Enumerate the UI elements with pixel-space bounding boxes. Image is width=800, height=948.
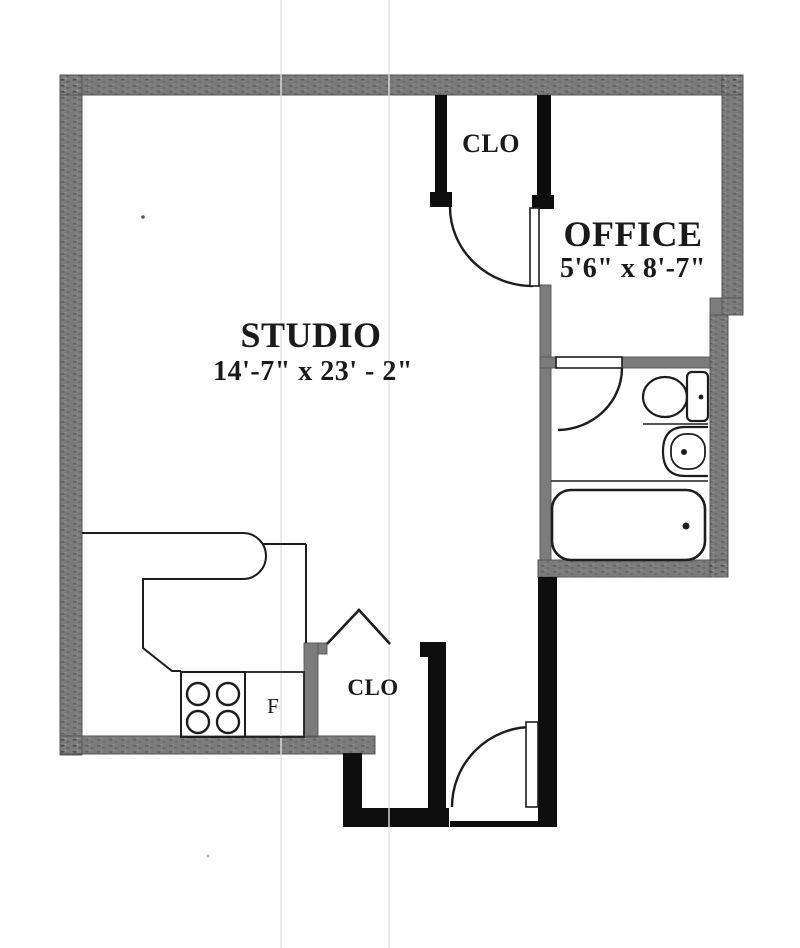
studio-dimensions: 14'-7" x 23' - 2" <box>213 356 413 387</box>
toilet-flush-dot <box>699 395 704 400</box>
scan-fold-lines <box>281 0 389 948</box>
toilet-tank <box>687 372 708 421</box>
bathroom-door-leaf <box>556 357 622 368</box>
studio-label: STUDIO <box>240 315 381 355</box>
sink-drain-dot <box>681 449 687 455</box>
bathroom-door-swing-arc <box>558 368 622 430</box>
floor-plan: STUDIO 14'-7" x 23' - 2" OFFICE 5'6" x 8… <box>0 0 800 948</box>
stove-burner <box>217 683 239 705</box>
floor-plan-page: STUDIO 14'-7" x 23' - 2" OFFICE 5'6" x 8… <box>0 0 800 948</box>
bathtub-drain-dot <box>683 523 690 530</box>
room-labels: STUDIO 14'-7" x 23' - 2" OFFICE 5'6" x 8… <box>213 129 706 718</box>
entry-door-leaf <box>526 722 538 807</box>
wall-closet-bottom-right-jamb <box>420 642 446 657</box>
partition-walls <box>343 95 557 827</box>
wall-closet-bottom-left-jamb <box>318 643 327 654</box>
wall-entry-bottom <box>343 808 449 827</box>
stove-burner <box>187 711 209 733</box>
wall-texture <box>60 75 743 755</box>
office-dimensions: 5'6" x 8'-7" <box>560 253 706 284</box>
wall-closet-top-left-jamb <box>430 192 452 207</box>
wall-office-bathroom-left <box>540 285 551 560</box>
office-label: OFFICE <box>563 214 702 254</box>
scan-speck-top <box>141 215 145 219</box>
sink-basin-inner <box>671 434 705 469</box>
wall-closet-bottom-right <box>428 657 446 808</box>
wall-closet-top-left <box>435 95 447 193</box>
stove-burner <box>217 711 239 733</box>
bathroom-fixtures <box>551 372 708 560</box>
closet-top-door-swing-arc <box>450 207 533 286</box>
refrigerator-label: F <box>267 694 279 718</box>
closet-top-door-leaf <box>530 208 539 286</box>
kitchen-counter-outline <box>82 533 266 671</box>
entry-door-threshold <box>450 821 538 827</box>
toilet-bowl <box>643 377 687 417</box>
scan-speck-bottom <box>207 855 210 858</box>
exterior-walls <box>60 75 743 755</box>
stove <box>181 672 245 737</box>
wall-closet-bottom-left <box>304 643 318 737</box>
closet-bottom-bifold-door <box>327 610 390 644</box>
wall-entry-right <box>538 577 557 827</box>
bathtub <box>552 490 705 560</box>
wall-bathroom-top-left <box>540 357 557 368</box>
wall-entry-left <box>343 753 362 808</box>
stove-burner <box>187 683 209 705</box>
closet-top-label: CLO <box>462 129 520 158</box>
wall-closet-top-right <box>537 95 551 195</box>
closet-bottom-label: CLO <box>347 675 398 700</box>
entry-door-swing-arc <box>452 727 532 807</box>
wall-closet-top-right-jamb <box>532 195 554 209</box>
wall-bathroom-top-right <box>622 357 710 368</box>
